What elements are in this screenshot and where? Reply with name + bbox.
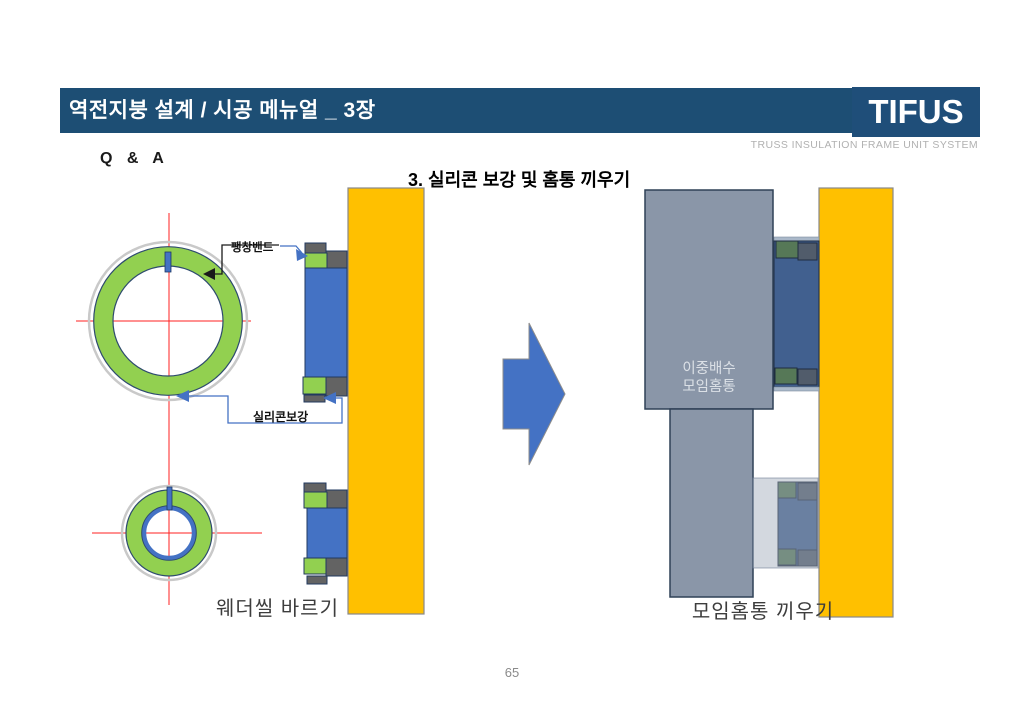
flange-tab-top bbox=[304, 483, 326, 492]
gray-block-bottom bbox=[326, 558, 347, 576]
gray-block-bottom bbox=[326, 377, 347, 396]
right-caption: 모임홈통 끼우기 bbox=[678, 595, 848, 624]
right-figure bbox=[645, 188, 893, 617]
flange-strip-bottom bbox=[774, 387, 819, 391]
gutter-label: 이중배수 모임홈통 bbox=[645, 360, 773, 396]
page-number: 65 bbox=[472, 665, 552, 680]
gray-block-bottom bbox=[798, 369, 817, 385]
gray-block-top bbox=[326, 251, 347, 268]
green-seal-top bbox=[304, 492, 327, 508]
green-seal-top bbox=[305, 253, 327, 268]
green-seal-bottom bbox=[304, 558, 326, 574]
green-seal-bottom bbox=[303, 377, 326, 394]
expansion-band-tick bbox=[165, 252, 171, 272]
left-caption: 웨더씰 바르기 bbox=[195, 592, 360, 621]
silicone-label: 실리콘보강 bbox=[253, 408, 308, 425]
expansion-band-label: 팽창밴드 bbox=[231, 239, 273, 255]
drain-pipe-body bbox=[307, 508, 347, 558]
drain-pipe-body bbox=[305, 268, 347, 377]
parapet-wall-left bbox=[348, 188, 424, 614]
right-upper-assembly bbox=[774, 237, 819, 391]
drain-pipe-body bbox=[774, 241, 819, 387]
gutter-arm-overlay bbox=[753, 478, 818, 568]
gutter-body bbox=[670, 409, 753, 597]
diagram-canvas bbox=[0, 0, 1024, 709]
gray-block-top bbox=[326, 490, 347, 508]
flange-tab-top bbox=[305, 243, 326, 254]
expansion-band-tick-small bbox=[167, 487, 172, 510]
flange-tab-bottom bbox=[307, 576, 327, 584]
green-seal-bottom bbox=[775, 368, 797, 384]
side-view-lower-assembly bbox=[304, 483, 347, 584]
side-view-upper-assembly bbox=[303, 243, 347, 402]
gray-block-top bbox=[798, 243, 817, 260]
green-seal-top bbox=[776, 241, 798, 258]
parapet-wall-right bbox=[819, 188, 893, 617]
flange-tab-bottom bbox=[304, 395, 325, 402]
transition-arrow-icon bbox=[503, 323, 565, 465]
